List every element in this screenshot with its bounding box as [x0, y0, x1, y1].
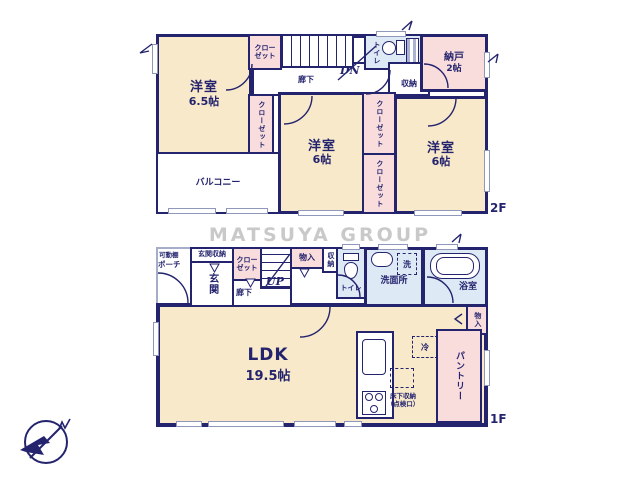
fridge-label: 冷 — [421, 342, 429, 353]
movable-shelf-label: 可動棚 — [159, 249, 179, 259]
window — [484, 52, 490, 78]
washer-space: 洗 — [397, 253, 417, 275]
floor-label-2f: 2F — [490, 201, 507, 215]
window — [176, 421, 202, 427]
window — [152, 44, 158, 74]
compass-icon — [16, 412, 80, 476]
window — [484, 150, 490, 192]
pantry-label: パントリー — [454, 351, 464, 401]
closet-1f: クローゼット — [232, 247, 262, 281]
closet-label: クローゼット — [257, 101, 265, 149]
balcony-rail — [226, 208, 268, 214]
closet-label: クローゼット — [375, 100, 383, 148]
room-name: 洋室 — [427, 142, 455, 157]
closet-2f-top: クローゼット — [248, 34, 282, 70]
window — [484, 350, 490, 386]
storeroom-nando: 納戸 2帖 — [420, 34, 488, 92]
bath-label: 浴室 — [459, 282, 477, 292]
room-bedroom-6-5: 洋室 6.5帖 — [156, 34, 252, 155]
entry-genkan: 玄関 — [190, 261, 234, 307]
toilet-tank-icon — [396, 40, 405, 55]
toilet-tank-icon — [343, 253, 359, 261]
porch-label: ポーチ — [158, 259, 181, 270]
closet-2f-mid: クローゼット — [362, 92, 396, 155]
underfloor-storage — [390, 368, 414, 388]
toilet-label: トイレ — [341, 285, 362, 293]
watermark-text: MATSUYA GROUP — [200, 224, 440, 246]
storage-monoire-1f: 物入 — [290, 247, 324, 269]
balcony-rail — [168, 208, 216, 214]
closet-2f-left: クローゼット — [248, 94, 274, 156]
ldk-size: 19.5帖 — [232, 365, 304, 384]
underfloor-label-2: （点検口） — [378, 398, 428, 408]
storage-label: 物入 — [473, 312, 481, 328]
window — [344, 421, 362, 427]
closet-label: クローゼット — [235, 256, 259, 272]
window — [342, 244, 360, 250]
stairs-down-2f — [280, 34, 354, 68]
window — [298, 210, 344, 216]
washroom-label: 洗面所 — [380, 276, 407, 286]
closet-label: クローゼット — [253, 44, 277, 60]
room-name: 納戸 — [444, 52, 464, 63]
closet-2f-bottom: クローゼット — [362, 153, 396, 214]
pantry: パントリー — [436, 329, 482, 423]
window — [378, 244, 408, 250]
entry-storage-label: 玄関収納 — [198, 251, 226, 259]
balcony-label: バルコニー — [196, 178, 241, 188]
closet-label: クローゼット — [375, 160, 383, 208]
room-bedroom-6-mid: 洋室 6帖 — [278, 92, 366, 214]
stairs-up-label: UP — [266, 275, 284, 288]
bathtub-inner — [436, 257, 474, 275]
ldk-name: LDK — [232, 345, 304, 365]
hallway-2f-label: 廊下 — [298, 74, 314, 85]
sink-icon — [371, 252, 393, 267]
stairs-dn-label: DN — [340, 64, 360, 77]
toilet-label: トイレ — [372, 41, 380, 65]
fridge-space: 冷 — [412, 336, 438, 358]
room-bedroom-6-right: 洋室 6帖 — [394, 96, 488, 214]
kitchen-sink-icon — [362, 339, 386, 375]
entry-label: 玄関 — [206, 273, 217, 295]
window — [208, 421, 284, 427]
washer-label: 洗 — [403, 259, 411, 270]
balcony: バルコニー — [156, 152, 280, 214]
toilet-bowl-icon — [382, 41, 396, 55]
floorplan-canvas: MATSUYA GROUP 洋室 6.5帖 クローゼット トイレ 収納 納戸 2… — [0, 0, 640, 480]
room-size: 6.5帖 — [189, 96, 220, 108]
window — [414, 210, 462, 216]
room-size: 2帖 — [446, 64, 461, 74]
room-size: 6帖 — [432, 156, 451, 168]
window — [436, 244, 458, 250]
floor-label-1f: 1F — [490, 412, 507, 426]
window — [376, 31, 406, 37]
hallway-1f-label: 廊下 — [236, 287, 252, 298]
room-name: 洋室 — [190, 81, 218, 96]
room-name: 洋室 — [308, 140, 336, 155]
storage-label: 収納 — [401, 80, 417, 89]
window — [294, 421, 336, 427]
room-size: 6帖 — [313, 154, 332, 166]
storage-label: 物入 — [299, 254, 315, 263]
window — [153, 322, 159, 356]
storage-label: 収納 — [326, 252, 334, 268]
